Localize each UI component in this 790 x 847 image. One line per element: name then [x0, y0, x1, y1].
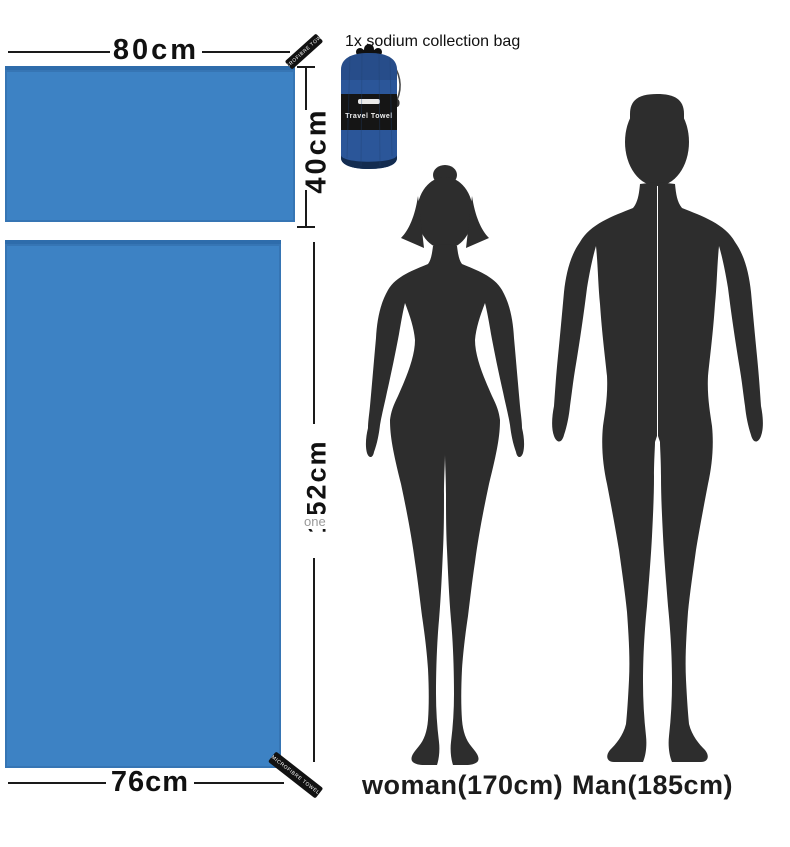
woman-body — [366, 244, 445, 765]
dim-label-40cm: 40cm — [301, 106, 334, 196]
man-hair — [630, 94, 684, 130]
dim-line-152-bottom — [313, 558, 315, 762]
bag-band-text: Travel Towel — [345, 113, 393, 120]
man-silhouette — [540, 92, 775, 777]
dim-line-80-left — [8, 51, 110, 53]
dim-line-80-right — [202, 51, 290, 53]
small-towel — [5, 66, 295, 222]
bag-caption: 1x sodium collection bag — [345, 33, 520, 51]
dim-label-80cm: 80cm — [112, 34, 200, 67]
product-size-diagram: 80cm MICROFIBRE TOWEL 40cm 1x sodium col… — [0, 0, 790, 847]
woman-head — [417, 177, 473, 249]
watermark-one: one — [303, 514, 327, 529]
woman-silhouette — [360, 164, 530, 774]
man-body — [552, 182, 657, 762]
storage-bag: Travel Towel — [334, 40, 404, 174]
woman-label: woman(170cm) — [362, 770, 552, 801]
large-towel — [5, 240, 281, 768]
dim-line-76-left — [8, 782, 106, 784]
dim-label-76cm: 76cm — [108, 766, 192, 799]
small-towel-corner-tag: MICROFIBRE TOWEL — [285, 33, 324, 69]
dim-line-76-right — [194, 782, 284, 784]
dim-tick-40-bottom — [297, 226, 315, 228]
woman-label-height: (170cm) — [458, 770, 564, 800]
man-label: Man(185cm) — [555, 770, 750, 801]
small-towel-tag-text: MICROFIBRE TOWEL — [285, 33, 324, 69]
man-label-height: (185cm) — [627, 770, 733, 800]
woman-label-name: woman — [362, 770, 458, 800]
dim-line-152-top — [313, 242, 315, 424]
man-label-name: Man — [572, 770, 628, 800]
dim-line-40-bottom — [305, 190, 307, 226]
dim-line-40-top — [305, 68, 307, 110]
